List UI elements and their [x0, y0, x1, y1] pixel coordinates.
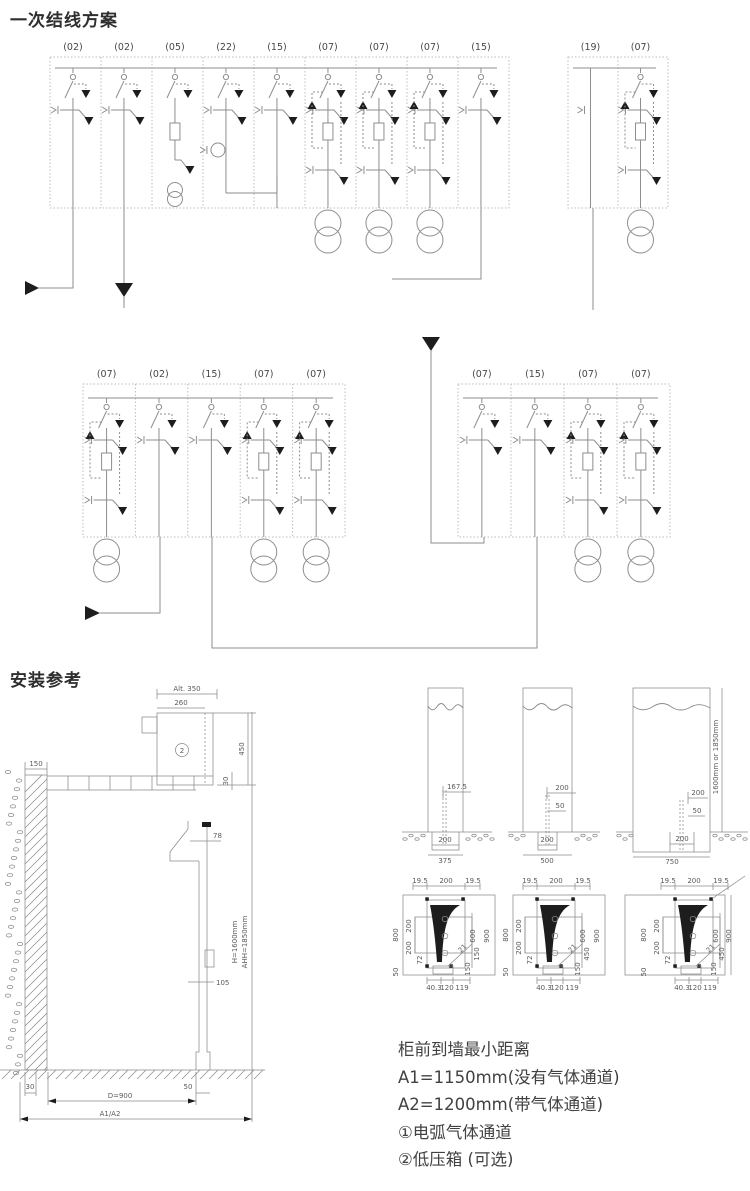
drawing-shape: [460, 437, 465, 443]
dim-label: 200: [555, 784, 568, 792]
anchor-dot: [425, 897, 429, 901]
drawing-shape: [200, 1070, 209, 1079]
dim-label: 750: [665, 858, 678, 866]
drawing-shape: [566, 497, 571, 503]
drawing-shape: [303, 556, 329, 582]
arrow-icon: [118, 507, 127, 515]
ground-texture: [719, 838, 723, 841]
dim-label: 200: [653, 919, 661, 932]
dim-label: 30: [26, 1083, 35, 1091]
arrow-icon: [81, 90, 90, 98]
drawing-shape: [70, 74, 75, 79]
drawing-shape: [380, 84, 392, 89]
arrow-icon: [325, 420, 334, 428]
rubble-texture: [5, 994, 11, 997]
drawing-shape: [578, 107, 583, 113]
drawing-shape: [425, 123, 435, 140]
scheme-cell-label: (07): [318, 42, 338, 53]
dim-label: 120: [688, 984, 701, 992]
drawing-shape: [303, 539, 329, 565]
drawing-shape: [212, 537, 537, 648]
dim-label: D=900: [108, 1092, 133, 1100]
dim-label: 1600mm or 1850mm: [712, 720, 720, 795]
drawing-shape: [408, 167, 413, 173]
arrow-icon: [422, 337, 440, 351]
dim-label: 900: [593, 929, 601, 942]
drawing-shape: [25, 932, 47, 954]
drawing-shape: [191, 1070, 200, 1079]
arrow-icon: [48, 1099, 56, 1104]
drawing-shape: [25, 770, 47, 792]
drawing-shape: [633, 411, 641, 428]
ground-texture: [521, 834, 525, 837]
drawing-shape: [317, 414, 329, 419]
rubble-texture: [17, 831, 23, 834]
drawing-shape: [218, 81, 226, 98]
drawing-shape: [200, 147, 205, 153]
dim-label: 200: [405, 919, 413, 932]
drawing-shape: [51, 107, 56, 113]
drawing-shape: [172, 74, 177, 79]
drawing-shape: [483, 414, 495, 419]
drawing-shape: [376, 74, 381, 79]
anchor-dot: [709, 897, 713, 901]
drawing-shape: [628, 539, 654, 565]
drawing-shape: [255, 107, 260, 113]
drawing-shape: [571, 422, 583, 478]
drawing-shape: [99, 411, 107, 428]
drawing-shape: [479, 404, 484, 409]
arrow-icon: [272, 420, 281, 428]
ground-texture: [421, 834, 425, 837]
drawing-shape: [585, 404, 590, 409]
drawing-shape: [56, 1070, 65, 1079]
drawing-shape: [427, 74, 432, 79]
arrow-icon: [387, 90, 396, 98]
rubble-texture: [8, 925, 14, 928]
arrow-icon: [493, 447, 502, 455]
rubble-texture: [8, 813, 14, 816]
anchor-dot: [673, 897, 677, 901]
rubble-texture: [17, 1054, 23, 1057]
drawing-shape: [478, 74, 483, 79]
drawing-shape: [209, 1070, 218, 1079]
drawing-shape: [25, 842, 47, 864]
scheme-cell-label: (05): [165, 42, 185, 53]
dim-label: 167.5: [447, 783, 467, 791]
drawing-shape: [151, 411, 159, 428]
dim-label: AHH=1850mm: [241, 916, 249, 969]
drawing-shape: [25, 959, 47, 981]
arrow-icon: [490, 420, 499, 428]
drawing-shape: [50, 57, 509, 208]
arrow-icon: [288, 117, 297, 125]
drawing-shape: [25, 896, 47, 918]
rubble-texture: [12, 908, 18, 911]
scheme-cell-label: (02): [114, 42, 134, 53]
dim-label: 120: [550, 984, 563, 992]
arrow-icon: [596, 420, 605, 428]
drawing-shape: [278, 84, 290, 89]
drawing-shape: [25, 923, 47, 945]
arrow-icon: [132, 90, 141, 98]
drawing-shape: [329, 84, 341, 89]
drawing-shape: [259, 453, 269, 470]
drawing-shape: [74, 1070, 83, 1079]
scheme-cell-label: (07): [420, 42, 440, 53]
drawing-shape: [414, 92, 425, 148]
drawing-shape: [323, 123, 333, 140]
arrow-icon: [390, 177, 399, 185]
scheme-cell-label: (07): [631, 369, 651, 380]
dim-label: 450: [718, 947, 726, 960]
rubble-texture: [16, 779, 22, 782]
drawing-shape: [256, 411, 264, 428]
drawing-shape: [315, 210, 341, 236]
dim-label: 50: [392, 968, 400, 977]
drawing-shape: [638, 74, 643, 79]
arrow-icon: [652, 177, 661, 185]
rubble-texture: [6, 822, 12, 825]
drawing-shape: [156, 404, 161, 409]
rubble-texture: [16, 1003, 22, 1006]
dim-label: 800: [640, 928, 648, 941]
drawing-shape: [226, 175, 277, 193]
drawing-shape: [306, 167, 311, 173]
drawing-shape: [223, 74, 228, 79]
rubble-texture: [11, 968, 17, 971]
drawing-shape: [636, 453, 646, 470]
dim-label: A1/A2: [100, 1110, 121, 1118]
one-line-diagrams: (02)(02)(05)(22)(15)(07)(07)(07)(15)(19)…: [25, 42, 670, 648]
anchor-dot: [535, 964, 539, 968]
drawing-shape: [204, 107, 209, 113]
drawing-shape: [366, 227, 392, 253]
arrow-icon: [275, 507, 284, 515]
anchor-dot: [535, 897, 539, 901]
arrow-icon: [489, 90, 498, 98]
scheme-cell-label: (07): [631, 42, 651, 53]
drawing-shape: [314, 404, 319, 409]
drawing-shape: [25, 968, 47, 990]
drawing-shape: [568, 57, 668, 208]
dim-label: 200: [438, 836, 451, 844]
rubble-texture: [17, 942, 23, 945]
drawing-shape: [642, 414, 654, 419]
note-line: ①电弧气体通道: [398, 1119, 738, 1147]
drawing-shape: [25, 869, 47, 891]
drawing-shape: [25, 860, 47, 882]
drawing-shape: [85, 497, 90, 503]
arrow-icon: [135, 117, 144, 125]
drawing-shape: [532, 404, 537, 409]
drawing-shape: [170, 123, 180, 140]
rubble-texture: [9, 865, 15, 868]
dim-label: 200: [515, 919, 523, 932]
dim-label: 119: [565, 984, 578, 992]
dim-label: 50: [693, 807, 702, 815]
dim-label: 800: [502, 928, 510, 941]
drawing-shape: [142, 717, 157, 733]
drawing-shape: [25, 905, 47, 927]
break-line: [523, 704, 572, 711]
rubble-texture: [6, 934, 12, 937]
drawing-shape: [265, 414, 277, 419]
drawing-shape: [25, 824, 47, 846]
drawing-shape: [25, 1040, 47, 1062]
drawing-shape: [29, 1070, 38, 1079]
drawing-shape: [170, 852, 199, 861]
drawing-shape: [473, 81, 481, 98]
arrow-icon: [115, 420, 124, 428]
ground-texture: [575, 838, 579, 841]
rubble-texture: [13, 848, 19, 851]
drawing-shape: [25, 986, 47, 1008]
arrow-icon: [336, 90, 345, 98]
rubble-texture: [7, 985, 13, 988]
drawing-shape: [212, 414, 224, 419]
drawing-shape: [25, 950, 47, 972]
dim-label: 105: [216, 979, 229, 987]
drawing-shape: [527, 411, 535, 428]
drawing-shape: [102, 107, 107, 113]
anchor-dot: [461, 897, 465, 901]
anchor-dot: [673, 964, 677, 968]
ground-texture: [581, 834, 585, 837]
dim-label: 260: [174, 699, 187, 707]
drawing-shape: [363, 92, 374, 148]
dim-label: 119: [455, 984, 468, 992]
drawing-shape: [25, 788, 47, 810]
rubble-texture: [5, 770, 11, 773]
arrow-icon: [237, 117, 246, 125]
drawing-shape: [371, 81, 379, 98]
drawing-shape: [261, 404, 266, 409]
wall-hatch: [25, 770, 47, 1107]
arrow-icon: [328, 507, 337, 515]
drawing-shape: [102, 453, 112, 470]
drawing-shape: [236, 1070, 245, 1079]
scheme-cell-label: (15): [525, 369, 545, 380]
ground-texture: [478, 838, 482, 841]
dim-label: 150: [710, 962, 718, 975]
drawing-shape: [176, 84, 188, 89]
rubble-texture: [14, 899, 20, 902]
drawing-shape: [25, 779, 47, 801]
dim-label: 900: [725, 929, 733, 942]
ground-texture: [490, 838, 494, 841]
drawing-shape: [536, 414, 548, 419]
anchor-dot: [425, 964, 429, 968]
drawing-shape: [619, 497, 624, 503]
drawing-shape: [636, 123, 646, 140]
dim-label: 200: [549, 877, 562, 885]
scheme-cell-label: (15): [471, 42, 491, 53]
drawing-shape: [94, 556, 120, 582]
drawing-shape: [83, 1070, 92, 1079]
ground-texture: [629, 834, 633, 837]
drawing-shape: [155, 1070, 164, 1079]
arrow-icon: [244, 1117, 252, 1122]
drawing-shape: [589, 414, 601, 419]
dim-label: 120: [440, 984, 453, 992]
arrow-icon: [84, 117, 93, 125]
ground-texture: [515, 838, 519, 841]
dim-label: 50: [556, 802, 565, 810]
drawing-shape: [374, 123, 384, 140]
dim-label: 50: [502, 968, 510, 977]
ground-texture: [466, 838, 470, 841]
scheme-cell-label: (15): [267, 42, 287, 53]
drawing-shape: [65, 1070, 74, 1079]
ground-texture: [409, 834, 413, 837]
arrow-icon: [441, 177, 450, 185]
dim-label: 600: [712, 929, 720, 942]
drawing-shape: [128, 1070, 137, 1079]
dim-label: 200: [687, 877, 700, 885]
arc-duct-flap: [202, 822, 211, 827]
drawing-shape: [167, 192, 182, 207]
drawing-shape: [242, 497, 247, 503]
drawing-shape: [459, 107, 464, 113]
dim-label: H=1600mm: [231, 921, 239, 964]
drawing-shape: [2, 1070, 11, 1079]
rubble-texture: [14, 788, 20, 791]
dim-label: 19.5: [465, 877, 481, 885]
arrow-icon: [234, 90, 243, 98]
dim-label: 72: [664, 956, 672, 965]
drawing-shape: [315, 227, 341, 253]
drawing-shape: [575, 539, 601, 565]
drawing-shape: [25, 851, 47, 873]
drawing-shape: [125, 84, 137, 89]
drawing-shape: [25, 878, 47, 900]
arrow-icon: [649, 90, 658, 98]
drawing-shape: [25, 941, 47, 963]
drawing-shape: [209, 404, 214, 409]
rubble-texture: [11, 856, 17, 859]
scheme-cell-label: (02): [149, 369, 169, 380]
drawing-shape: [431, 84, 443, 89]
drawing-shape: [619, 167, 624, 173]
drawing-shape: [642, 84, 654, 89]
drawing-shape: [575, 556, 601, 582]
drawing-shape: [251, 539, 277, 565]
drawing-shape: [628, 227, 654, 253]
drawing-shape: [90, 422, 102, 478]
dim-label: 50: [184, 1083, 193, 1091]
rubble-texture: [12, 1020, 18, 1023]
dim-label: 200: [405, 941, 413, 954]
drawing-shape: [20, 1070, 29, 1079]
break-line: [633, 704, 710, 711]
install-notes: 柜前到墙最小距离 A1=1150mm(没有气体通道) A2=1200mm(带气体…: [398, 1036, 738, 1174]
dim-label: 450: [238, 742, 246, 755]
arrow-icon: [220, 420, 229, 428]
drawing-shape: [146, 1070, 155, 1079]
scheme-cell-label: (07): [97, 369, 117, 380]
drawing-shape: [633, 81, 641, 98]
drawing-shape: [482, 84, 494, 89]
rubble-texture: [10, 805, 16, 808]
drawing-shape: [94, 539, 120, 565]
scheme-cell-label: (22): [216, 42, 236, 53]
drawing-shape: [300, 422, 312, 478]
drawing-shape: [203, 411, 211, 428]
drawing-shape: [417, 227, 443, 253]
scheme-cell-label: (07): [306, 369, 326, 380]
drawing-shape: [211, 143, 225, 157]
break-line: [428, 704, 463, 711]
ground-texture: [484, 834, 488, 837]
dim-label: 78: [213, 832, 222, 840]
scheme-cell-label: (15): [202, 369, 222, 380]
drawing-shape: [638, 404, 643, 409]
arrow-icon: [185, 166, 194, 174]
drawing-shape: [137, 1070, 146, 1079]
drawing-shape: [100, 537, 160, 613]
arrow-icon: [652, 507, 661, 515]
drawing-shape: [247, 422, 259, 478]
technical-drawing-canvas: (02)(02)(05)(22)(15)(07)(07)(07)(15)(19)…: [0, 0, 750, 1191]
drawing-shape: [196, 1038, 199, 1070]
drawing-shape: [74, 84, 86, 89]
arrow-icon: [25, 281, 39, 295]
drawing-shape: [218, 1070, 227, 1079]
dim-label: 30: [222, 777, 230, 786]
circled-2-mark: 2: [180, 747, 184, 755]
note-line: ②低压箱 (可选): [398, 1146, 738, 1174]
drawing-shape: [392, 208, 481, 279]
scheme-cell-label: (07): [578, 369, 598, 380]
dim-label: 200: [675, 835, 688, 843]
dim-label: 200: [653, 941, 661, 954]
dim-label: 200: [515, 941, 523, 954]
drawing-shape: [633, 688, 710, 852]
drawing-shape: [101, 1070, 110, 1079]
drawing-shape: [167, 183, 182, 198]
drawing-shape: [325, 74, 330, 79]
drawing-shape: [357, 167, 362, 173]
dim-label: 19.5: [412, 877, 428, 885]
drawing-shape: [38, 1070, 47, 1079]
dim-label: 200: [540, 836, 553, 844]
drawing-shape: [189, 437, 194, 443]
drawing-shape: [513, 437, 518, 443]
rubble-texture: [16, 891, 22, 894]
drawing-shape: [308, 411, 316, 428]
drawing-shape: [25, 806, 47, 828]
dim-label: Alt. 350: [173, 685, 200, 693]
ground-texture: [403, 838, 407, 841]
drawing-shape: [624, 422, 636, 478]
arrow-icon: [339, 177, 348, 185]
dim-label: 150: [29, 760, 42, 768]
rubble-texture: [9, 977, 15, 980]
arrow-icon: [115, 283, 133, 297]
arrow-icon: [285, 90, 294, 98]
note-line: A2=1200mm(带气体通道): [398, 1091, 738, 1119]
drawing-shape: [108, 414, 120, 419]
rubble-texture: [6, 1046, 12, 1049]
dim-label: 19.5: [522, 877, 538, 885]
ground-texture: [472, 834, 476, 837]
drawing-shape: [39, 208, 73, 288]
ground-texture: [509, 834, 513, 837]
drawing-shape: [104, 404, 109, 409]
rubble-texture: [15, 1063, 21, 1066]
dim-label: 19.5: [575, 877, 591, 885]
